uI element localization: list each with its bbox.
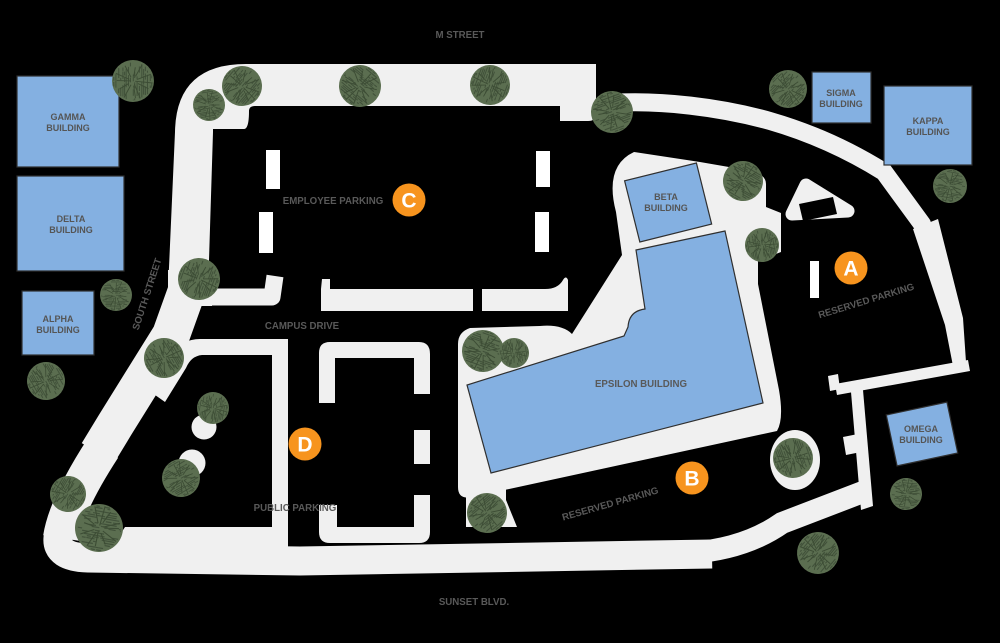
svg-text:GAMMA: GAMMA (51, 112, 86, 122)
svg-text:BUILDING: BUILDING (49, 225, 93, 235)
svg-text:C: C (401, 190, 416, 213)
svg-text:CAMPUS DRIVE: CAMPUS DRIVE (265, 321, 340, 332)
svg-text:PUBLIC PARKING: PUBLIC PARKING (254, 503, 337, 514)
svg-text:BUILDING: BUILDING (899, 435, 943, 445)
svg-text:SUNSET BLVD.: SUNSET BLVD. (439, 597, 510, 608)
svg-text:D: D (297, 434, 312, 457)
svg-text:EMPLOYEE PARKING: EMPLOYEE PARKING (283, 196, 383, 207)
svg-text:BUILDING: BUILDING (906, 127, 950, 137)
svg-text:B: B (684, 468, 699, 491)
svg-text:BUILDING: BUILDING (36, 325, 80, 335)
svg-text:BUILDING: BUILDING (819, 99, 863, 109)
svg-text:EPSILON BUILDING: EPSILON BUILDING (595, 379, 687, 390)
svg-text:ALPHA: ALPHA (43, 314, 74, 324)
svg-text:DELTA: DELTA (57, 214, 86, 224)
svg-text:M STREET: M STREET (436, 30, 485, 41)
svg-text:KAPPA: KAPPA (913, 116, 944, 126)
svg-text:BUILDING: BUILDING (644, 203, 688, 213)
svg-text:A: A (843, 258, 858, 281)
svg-text:BUILDING: BUILDING (46, 123, 90, 133)
svg-text:BETA: BETA (654, 192, 678, 202)
svg-text:OMEGA: OMEGA (904, 424, 939, 434)
svg-text:SIGMA: SIGMA (826, 88, 856, 98)
